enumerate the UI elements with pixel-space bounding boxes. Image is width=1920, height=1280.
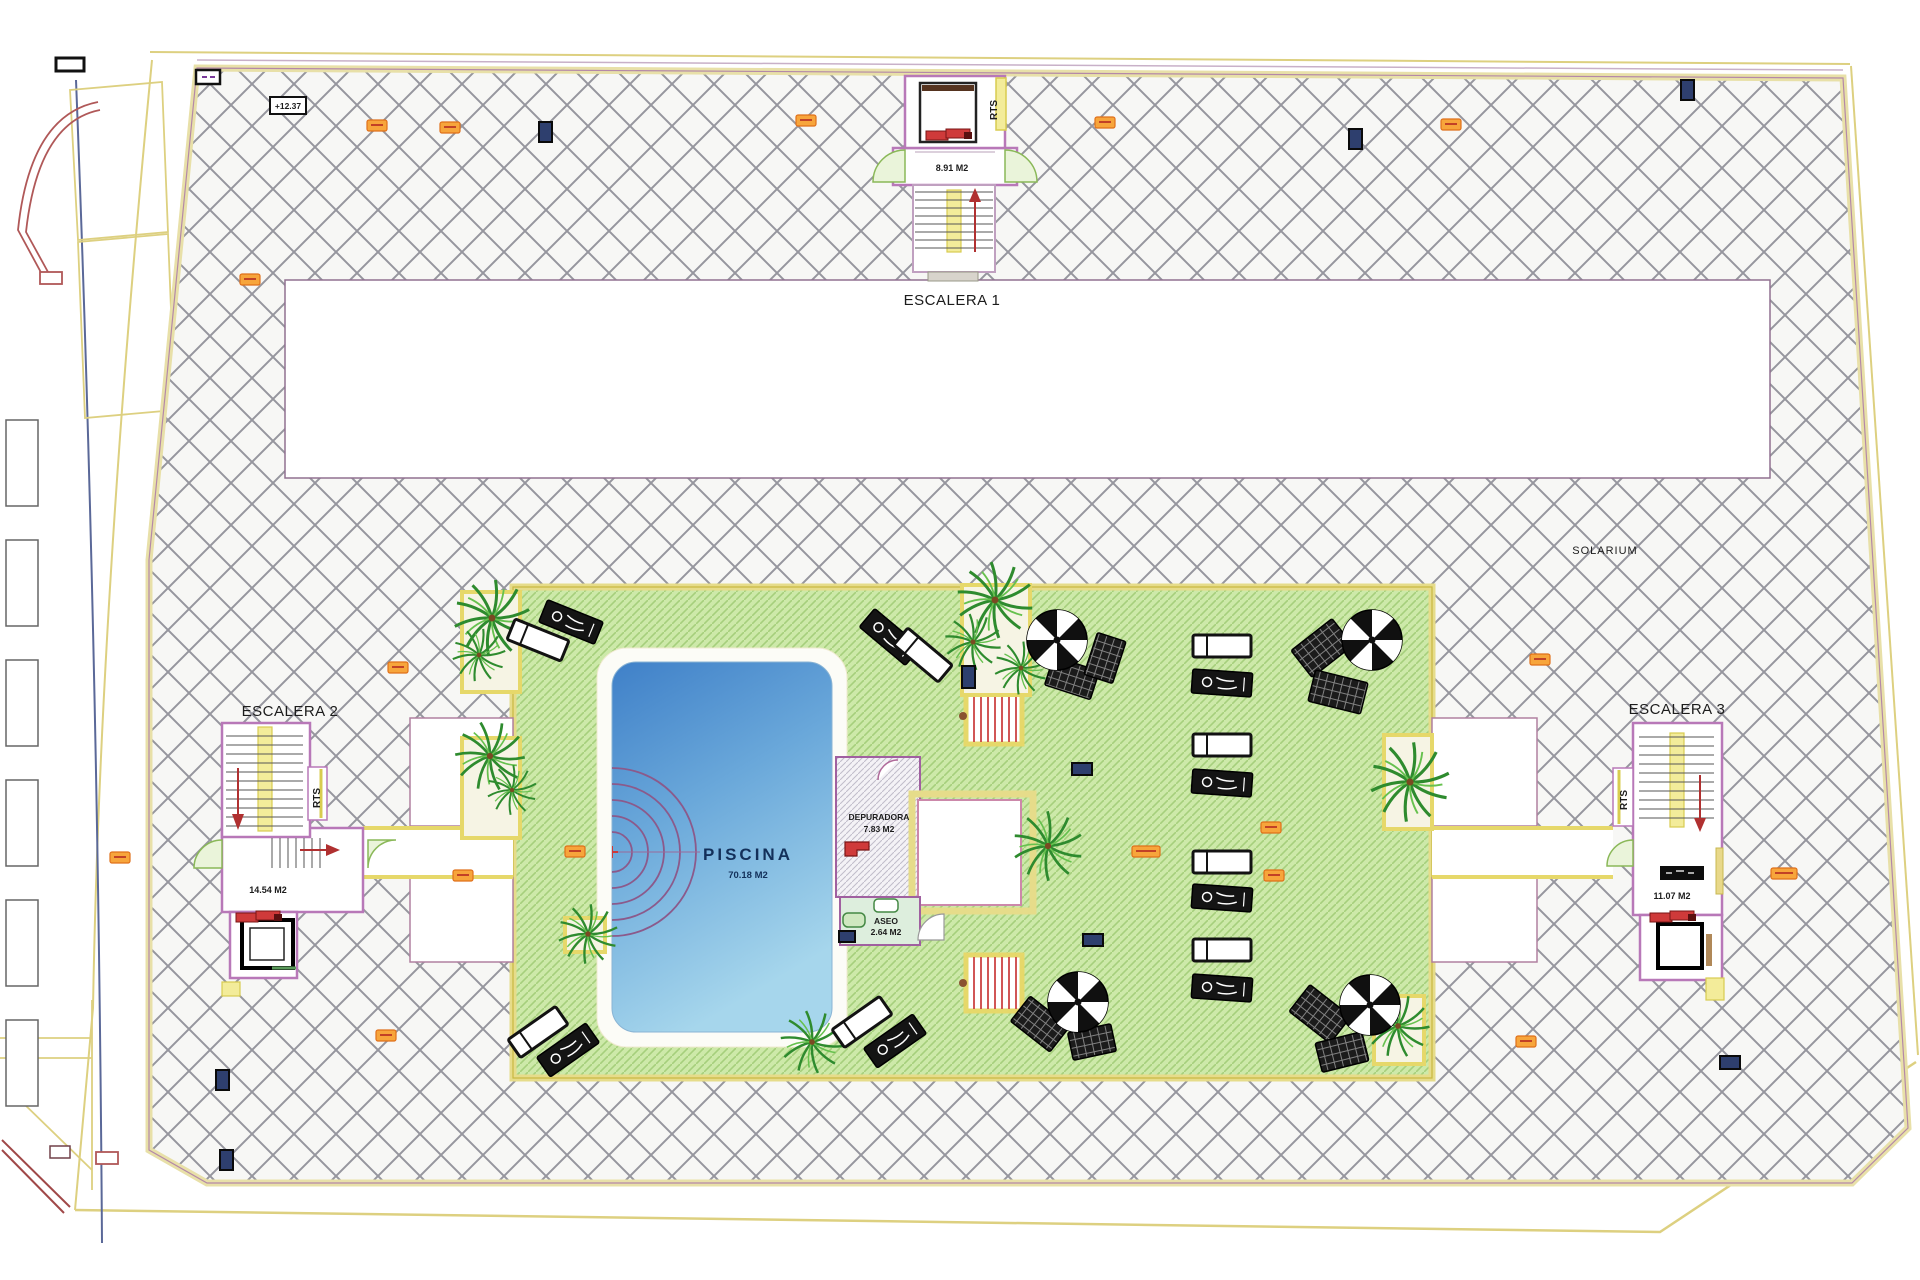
aseo-area: 2.64 M2 — [871, 927, 902, 937]
sun-lounger — [1193, 851, 1251, 873]
escalera2-rts: RTS — [312, 788, 323, 808]
jacuzzi-platform — [912, 794, 1033, 911]
escalera3-rts: RTS — [1619, 790, 1630, 810]
left-balcony-units — [6, 420, 38, 1106]
toilet-icon — [874, 899, 898, 912]
deck-stair-bottom — [959, 955, 1022, 1011]
parasol-umbrella — [1340, 975, 1400, 1035]
elevator-door-icon — [236, 911, 282, 922]
sink-icon — [843, 913, 865, 927]
sun-lounger-occupied — [1191, 974, 1253, 1002]
aseo-label: ASEO — [874, 916, 898, 926]
escalera3-label: ESCALERA 3 — [1629, 701, 1726, 718]
solarium-label: SOLARIUM — [1572, 545, 1637, 557]
elevation-value: +12.37 — [275, 101, 302, 111]
escalera2-area: 14.54 M2 — [249, 885, 287, 895]
stair-core-wall — [947, 190, 961, 252]
sun-lounger-occupied — [1191, 884, 1253, 912]
stair-core-wall — [258, 727, 272, 831]
escalera1-rts: RTS — [989, 100, 1000, 120]
depuradora-label: DEPURADORA — [849, 812, 910, 822]
sun-lounger — [1193, 635, 1251, 657]
sun-lounger — [1193, 939, 1251, 961]
escalera2-label: ESCALERA 2 — [242, 703, 339, 720]
sun-lounger-occupied — [1191, 769, 1253, 797]
piscina-label: PISCINA — [703, 845, 793, 864]
escalera3-area: 11.07 M2 — [1653, 891, 1690, 901]
elevator-shaft — [1658, 924, 1702, 968]
floor-plan-page: +12.37 ESCALERA 1 8.91 M2 RTS ESCALERA 2… — [0, 0, 1920, 1280]
parasol-umbrella — [1048, 972, 1108, 1032]
building-void — [285, 280, 1770, 478]
sun-lounger-occupied — [1191, 669, 1253, 697]
parasol-umbrella — [1027, 610, 1087, 670]
escalera1-area: 8.91 M2 — [936, 163, 969, 173]
parasol-umbrella — [1342, 610, 1402, 670]
floor-plan-drawing: +12.37 ESCALERA 1 8.91 M2 RTS ESCALERA 2… — [0, 0, 1920, 1280]
elevator-door-icon — [926, 129, 972, 140]
escalera1-label: ESCALERA 1 — [904, 292, 1001, 309]
depuradora-area: 7.83 M2 — [864, 824, 895, 834]
piscina-area: 70.18 M2 — [728, 870, 768, 881]
sun-lounger — [1193, 734, 1251, 756]
survey-marker-box — [56, 58, 84, 71]
stair-core-wall — [1670, 733, 1684, 827]
elevator-door-icon — [1650, 911, 1696, 922]
level-marker-tag — [196, 70, 220, 84]
